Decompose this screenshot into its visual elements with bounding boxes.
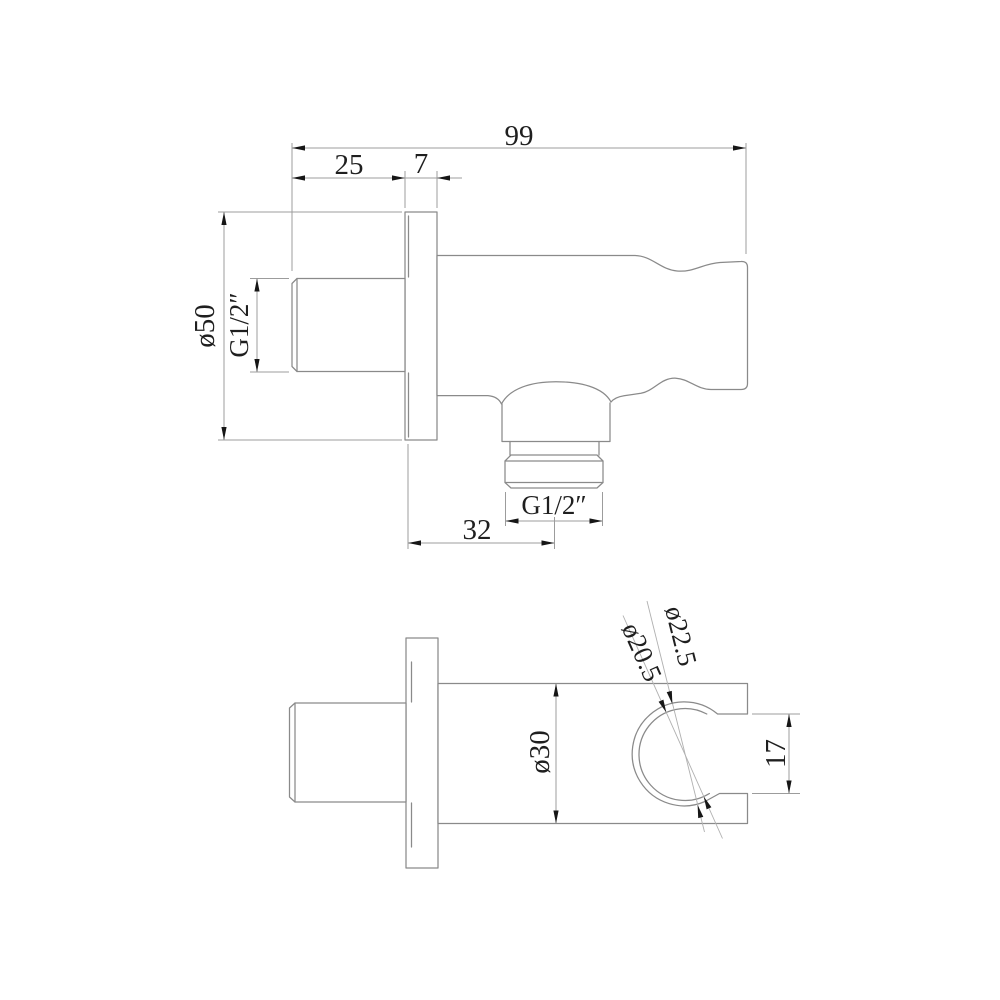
top-inlet-pipe: [290, 703, 407, 802]
dim-label-holder-opening: 17: [760, 739, 792, 768]
technical-drawing-page: 99 25 7 ø50 G1/2″ 32 G1/2″: [0, 0, 1000, 1000]
arrowhead: [542, 540, 555, 545]
arrowhead: [786, 781, 791, 794]
arrowhead: [254, 279, 259, 292]
arrowhead: [292, 145, 305, 150]
side-outlet-neck: [510, 442, 599, 456]
arrowhead: [292, 175, 305, 180]
dim-label-overall-length: 99: [505, 120, 534, 152]
top-flange-plate: [406, 638, 438, 868]
dim-label-outlet-thread: G1/2″: [521, 490, 586, 520]
side-outlet-thread-chamfer-lines: [505, 461, 603, 483]
dim-label-flange-thickness: 7: [414, 148, 429, 180]
side-flange-plate: [405, 212, 437, 440]
side-view: 99 25 7 ø50 G1/2″ 32 G1/2″: [189, 120, 748, 549]
top-cradle-inner-circle: [639, 709, 709, 801]
dim-label-outlet-offset: 32: [463, 514, 492, 546]
arrowhead: [254, 359, 259, 372]
dim-label-inlet-thread: G1/2″: [224, 292, 254, 357]
technical-drawing-canvas: 99 25 7 ø50 G1/2″ 32 G1/2″: [0, 0, 1000, 1000]
arrowhead: [506, 518, 519, 523]
side-inlet-pipe: [292, 279, 405, 372]
arrowhead: [221, 427, 226, 440]
arrowhead: [392, 175, 405, 180]
arrowhead: [221, 212, 226, 225]
dim-label-holder-inner-diameter: ø20.5: [616, 618, 668, 686]
dim-label-body-diameter: ø30: [524, 730, 556, 774]
side-body-outline: [437, 256, 748, 405]
arrowhead: [590, 518, 603, 523]
arrowhead: [408, 540, 421, 545]
arrowhead: [733, 145, 746, 150]
dim-label-holder-outer-diameter: ø22.5: [659, 603, 703, 669]
dim-label-inlet-length: 25: [335, 149, 364, 181]
dim-label-flange-diameter: ø50: [189, 304, 221, 348]
arrowhead: [786, 714, 791, 727]
top-view: ø30 17 ø20.5 ø22.5: [290, 601, 801, 868]
arrowhead: [437, 175, 450, 180]
top-body-outline: [438, 684, 748, 824]
side-outlet-boss: [502, 403, 610, 442]
